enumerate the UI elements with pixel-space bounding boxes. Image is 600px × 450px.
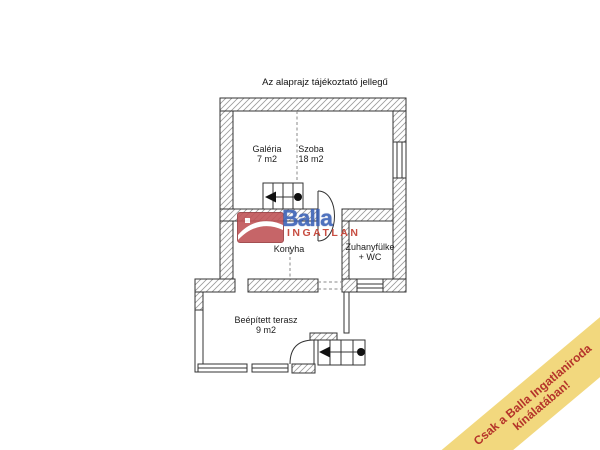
doorway-opening — [235, 279, 248, 292]
door-swing-terrace-icon — [290, 340, 314, 364]
room-name: Galéria — [252, 144, 281, 154]
room-name: Beépített terasz — [234, 315, 297, 325]
room-name: Konyha — [274, 244, 305, 254]
room-area: 9 m2 — [256, 325, 276, 335]
room-label-galeria: Galéria 7 m2 — [252, 144, 281, 164]
room-label-terasz: Beépített terasz 9 m2 — [234, 315, 297, 335]
room-label-szoba: Szoba 18 m2 — [298, 144, 324, 164]
disclaimer-text: Az alaprajz tájékoztató jellegű — [262, 77, 388, 88]
room-area: 18 m2 — [298, 154, 323, 164]
balla-house-icon — [237, 212, 284, 243]
window-shower-wall-icon — [357, 279, 383, 292]
room-label-zuhanyfulke: Zuhanyfülke + WC — [345, 242, 394, 262]
balla-logo: Balla INGATLAN — [237, 211, 367, 245]
room-label-konyha: Konyha — [274, 244, 305, 254]
floorplan-page: Az alaprajz tájékoztató jellegű Galéria … — [0, 0, 600, 450]
window-terrace-icons — [198, 364, 288, 372]
room-area: 7 m2 — [257, 154, 277, 164]
room-area: + WC — [359, 252, 382, 262]
window-right-wall-icon — [393, 142, 406, 178]
room-name: Szoba — [298, 144, 324, 154]
staircase-lower-icon — [318, 340, 365, 365]
balla-logo-subtitle: INGATLAN — [287, 228, 360, 239]
